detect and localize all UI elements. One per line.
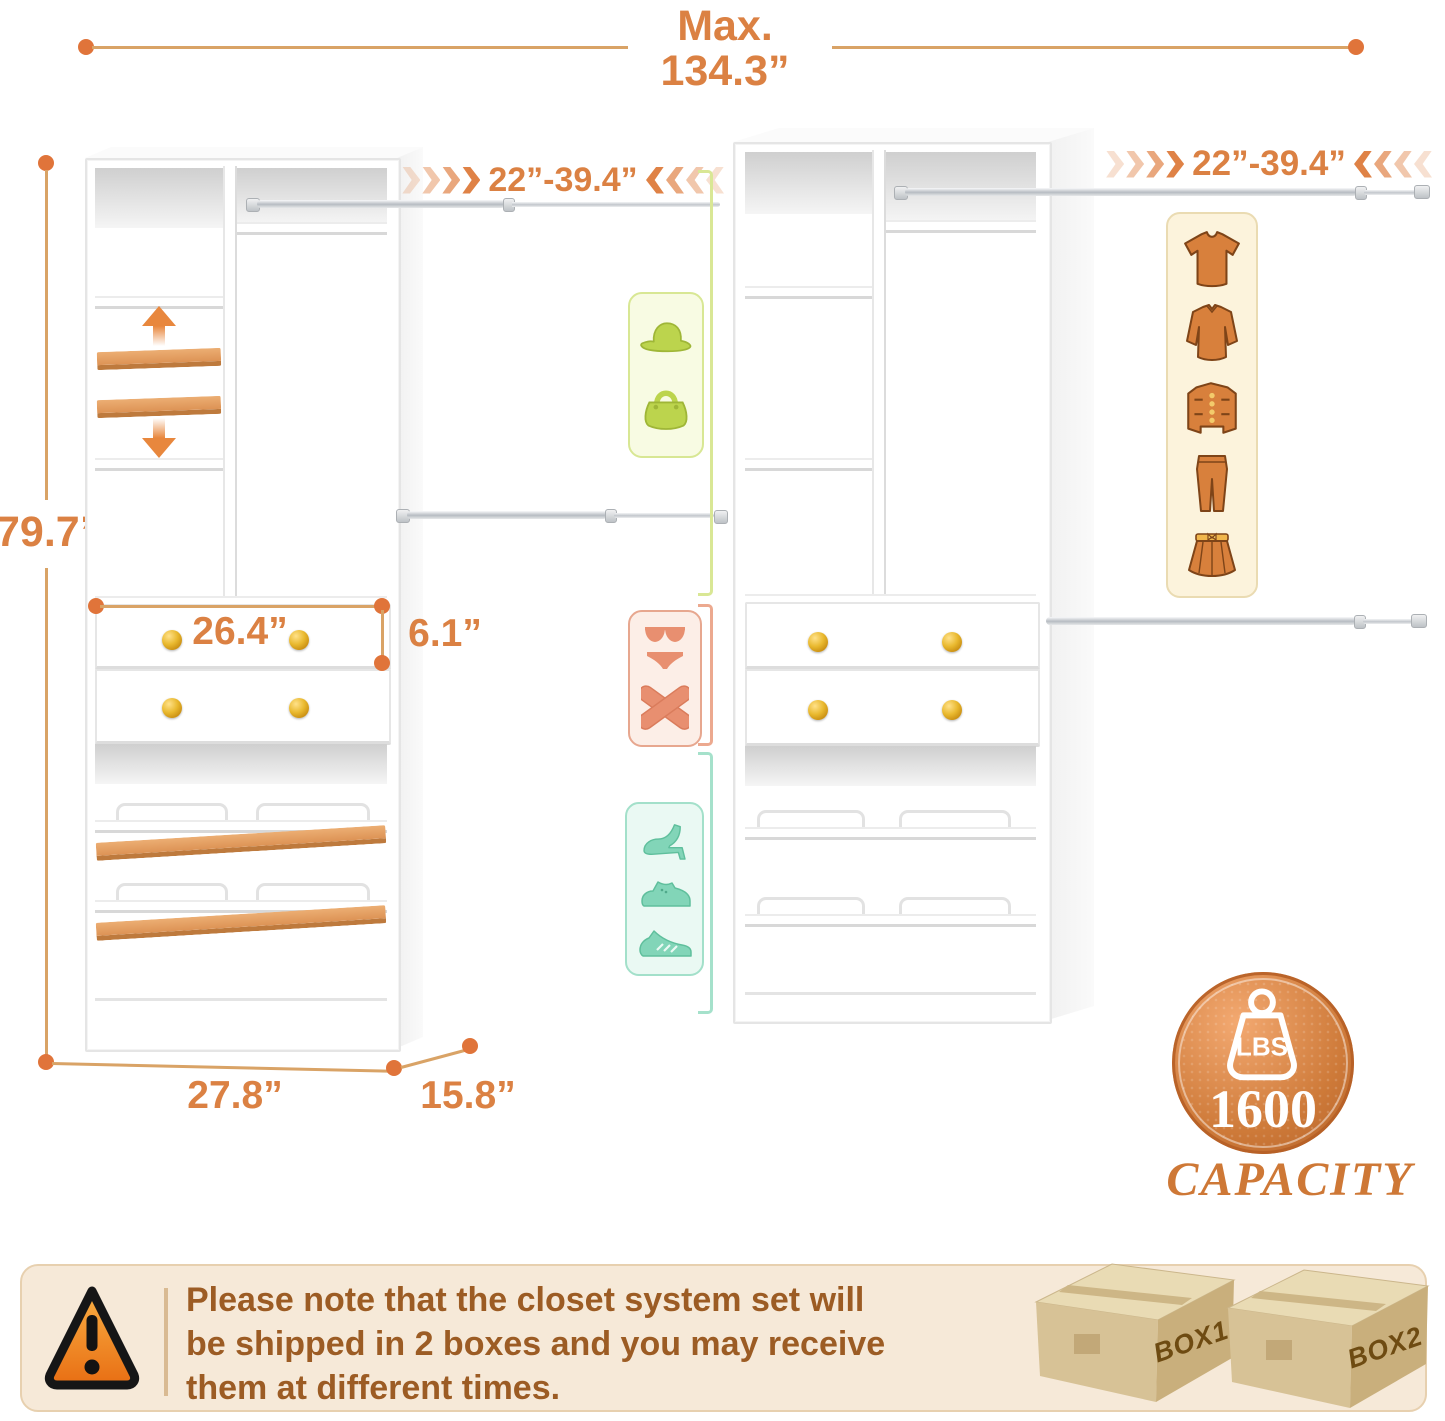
chevron-left-icon [1354, 151, 1372, 178]
chevron-right-icon [442, 167, 460, 194]
drawer-knob [808, 632, 828, 652]
warning-icon [42, 1280, 142, 1398]
dim-line-depth [401, 1047, 471, 1069]
notice-line-2: be shipped in 2 boxes and you may receiv… [186, 1322, 1046, 1366]
left-unit-cubby-shade [233, 168, 387, 224]
drawer [745, 602, 1040, 670]
dim-line-max-right [832, 46, 1352, 49]
shoe-section-shade [745, 746, 1036, 786]
max-width-label: Max. 134.3” [620, 4, 830, 94]
max-value: 134.3” [620, 49, 830, 94]
dim-dot [462, 1038, 478, 1054]
t-shirt-icon [1181, 230, 1243, 288]
accessories-panel [628, 292, 704, 458]
box-2: BOX2 [1228, 1270, 1428, 1408]
lbs-label: LBS [1236, 1032, 1288, 1062]
crossed-top-icon [641, 685, 689, 731]
hanging-rod [257, 200, 505, 208]
adjust-down-arrow-icon [142, 418, 176, 458]
unit-width-value: 27.8” [145, 1076, 325, 1117]
left-unit-divider [223, 166, 237, 600]
left-unit-top-face [85, 147, 423, 158]
chevron-right-icon [1146, 151, 1164, 178]
drawer-knob [289, 698, 309, 718]
long-sleeve-shirt-icon [1180, 303, 1244, 365]
shoes-panel [625, 802, 704, 976]
left-unit-top-edge [233, 222, 387, 235]
dim-line-height-top [45, 170, 48, 500]
right-unit-base [745, 992, 1036, 995]
drawer-height-value: 6.1” [390, 614, 500, 655]
capacity-caption: CAPACITY [1140, 1152, 1440, 1207]
right-unit-fixed-shelf [745, 286, 872, 299]
chevron-left-icon [1414, 151, 1432, 178]
dim-line-height-bottom [45, 568, 48, 1058]
right-unit-top-edge [882, 220, 1036, 233]
hanging-rod [1046, 617, 1356, 625]
unit-depth-value: 15.8” [398, 1076, 538, 1117]
rod-range-right-value: 22”-39.4” [1186, 144, 1352, 184]
right-unit-top-face [733, 128, 1094, 142]
right-unit-divider [872, 150, 886, 598]
chevron-right-icon [422, 167, 440, 194]
product-dimension-diagram: Max. 134.3” 79.7” [0, 0, 1445, 1421]
dim-line-drawer-width [100, 605, 380, 608]
notice-line-1: Please note that the closet system set w… [186, 1278, 1046, 1322]
high-heel-icon [639, 821, 691, 861]
right-unit-side-panel [1048, 128, 1094, 1020]
chevron-right-icon [1126, 151, 1144, 178]
hanging-rod-extension [1364, 190, 1416, 195]
dim-line-width [52, 1062, 392, 1073]
shipping-boxes: BOX1 BOX2 [1016, 1242, 1436, 1412]
dress-shoe-icon [638, 877, 692, 911]
chevron-right-icon [462, 167, 480, 194]
chevron-left-icon [646, 167, 664, 194]
rod-end-cap [1411, 614, 1427, 628]
right-unit-fixed-shelf [745, 458, 872, 471]
dim-dot [1348, 39, 1364, 55]
sneaker-icon [637, 928, 693, 958]
banner-divider [164, 1288, 168, 1396]
underwear-panel [628, 610, 702, 747]
shipping-notice-text: Please note that the closet system set w… [186, 1278, 1046, 1410]
dim-dot [38, 155, 54, 171]
dim-dot [386, 1060, 402, 1076]
hanging-rod [905, 188, 1357, 196]
dim-dot [374, 655, 390, 671]
drawer-knob [942, 632, 962, 652]
shoe-section-shade [95, 744, 387, 784]
hanging-rod [407, 511, 607, 519]
box-1: BOX1 [1036, 1264, 1234, 1402]
drawer-knob [942, 700, 962, 720]
notice-line-3: them at different times. [186, 1366, 1046, 1410]
pants-icon [1186, 453, 1238, 515]
chevron-right-icon [402, 167, 420, 194]
rod-end-cap [714, 510, 728, 524]
right-closet-unit [733, 142, 1052, 1024]
dim-line-drawer-height [381, 610, 384, 660]
shoe-shelf [745, 914, 1036, 927]
shoe-shelf [745, 827, 1036, 840]
chevron-left-icon [666, 167, 684, 194]
rod-range-right: 22”-39.4” [1098, 146, 1440, 182]
dim-line-max-left [92, 46, 628, 49]
chevron-left-icon [1394, 151, 1412, 178]
rod-range-left: 22”-39.4” [404, 162, 722, 198]
drawer [745, 669, 1040, 747]
left-unit-base [95, 998, 387, 1001]
lingerie-icon [642, 626, 688, 670]
handbag-icon [640, 384, 692, 432]
chevron-right-icon [1106, 151, 1124, 178]
left-unit-cubby-shade [95, 168, 223, 228]
clothing-panel [1166, 212, 1258, 598]
skirt-icon [1182, 530, 1242, 580]
left-unit-fixed-shelf [95, 458, 223, 471]
max-label: Max. [620, 4, 830, 49]
hanging-rod-extension [1363, 619, 1413, 624]
hanging-rod-extension [512, 202, 720, 207]
jacket-icon [1180, 381, 1244, 437]
sun-hat-icon [638, 318, 694, 360]
drawer-knob [808, 700, 828, 720]
adjust-up-arrow-icon [142, 306, 176, 346]
drawer [95, 669, 391, 745]
drawer-knob [162, 698, 182, 718]
weight-icon: LBS [1206, 986, 1318, 1086]
right-unit-cubby-shade [745, 152, 872, 214]
chevron-right-icon [1166, 151, 1184, 178]
rod-end-cap [1414, 185, 1430, 199]
drawer-width-value: 26.4” [160, 612, 320, 653]
chevron-left-icon [1374, 151, 1392, 178]
capacity-value: 1600 [1172, 1078, 1354, 1140]
rod-range-left-value: 22”-39.4” [482, 161, 643, 200]
